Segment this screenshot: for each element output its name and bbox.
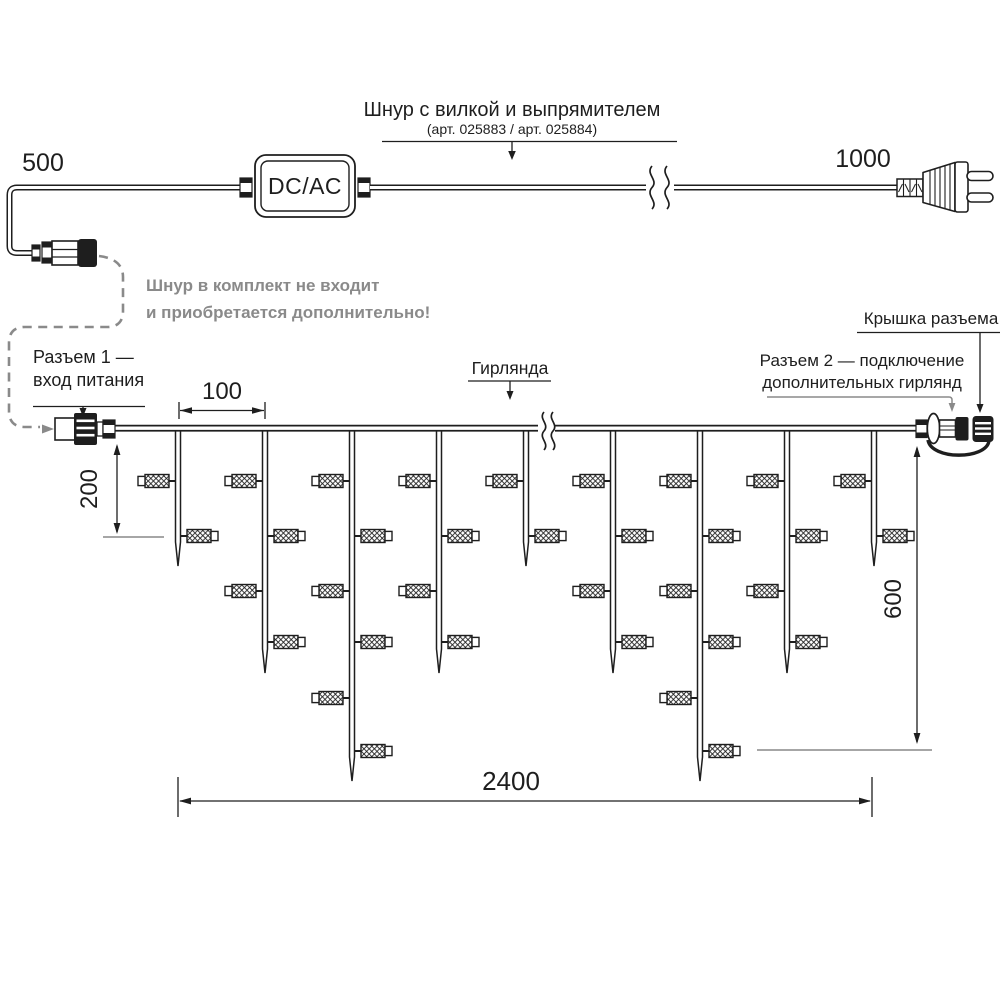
led-bulb bbox=[399, 475, 437, 488]
led-body bbox=[145, 475, 169, 488]
connector1-body bbox=[55, 418, 75, 440]
led-cap bbox=[486, 476, 493, 485]
led-bulb bbox=[616, 530, 654, 543]
wire-break bbox=[538, 412, 555, 450]
led-body bbox=[883, 530, 907, 543]
garland-callout: Гирлянда bbox=[468, 358, 551, 400]
arrow-right-icon bbox=[859, 798, 871, 805]
led-cap bbox=[660, 476, 667, 485]
plug-pin-bottom bbox=[967, 193, 993, 202]
clamp-band bbox=[358, 192, 370, 197]
led-cap bbox=[211, 531, 218, 540]
led-body bbox=[667, 475, 691, 488]
drop-wire bbox=[611, 426, 616, 673]
nut-groove bbox=[77, 427, 95, 430]
led-bulb bbox=[355, 636, 393, 649]
led-cap bbox=[747, 586, 754, 595]
garland-drop bbox=[312, 426, 392, 781]
led-body bbox=[274, 530, 298, 543]
gray-arrow-icon bbox=[42, 425, 54, 434]
led-bulb bbox=[660, 475, 698, 488]
connector1-collar bbox=[97, 422, 103, 436]
clamp-band bbox=[358, 178, 370, 183]
drop-wire bbox=[350, 426, 355, 781]
led-cap bbox=[660, 693, 667, 702]
callout-leader-gray bbox=[767, 397, 952, 403]
led-cap bbox=[747, 476, 754, 485]
cap-groove bbox=[975, 427, 991, 429]
drops-layer bbox=[138, 426, 914, 781]
led-bulb bbox=[573, 585, 611, 598]
dim-spacing-value: 100 bbox=[202, 378, 242, 405]
led-cap bbox=[660, 586, 667, 595]
led-cap bbox=[733, 637, 740, 646]
led-body bbox=[754, 585, 778, 598]
clamp-band bbox=[240, 192, 252, 197]
arrow-right-icon bbox=[252, 407, 264, 414]
cord-title: Шнур с вилкой и выпрямителем bbox=[364, 99, 661, 121]
led-bulb bbox=[399, 585, 437, 598]
garland-drop bbox=[138, 426, 218, 566]
led-bulb bbox=[355, 745, 393, 758]
drop-wire bbox=[176, 426, 181, 566]
ferrule-band bbox=[32, 257, 40, 262]
ferrule-band bbox=[42, 258, 52, 264]
drop-wire bbox=[524, 426, 529, 566]
arrow-down-icon bbox=[114, 523, 121, 534]
led-body bbox=[667, 692, 691, 705]
garland-technical-diagram: 500 1000 DC/AC bbox=[0, 0, 1000, 1000]
led-cap bbox=[225, 476, 232, 485]
plug-pin-top bbox=[967, 172, 993, 181]
led-bulb bbox=[877, 530, 915, 543]
drop-wire bbox=[785, 426, 790, 673]
led-body bbox=[535, 530, 559, 543]
connector2-label-line2: дополнительных гирлянд bbox=[762, 373, 962, 392]
clamp-band bbox=[916, 420, 927, 425]
led-body bbox=[493, 475, 517, 488]
led-body bbox=[448, 636, 472, 649]
led-body bbox=[580, 585, 604, 598]
led-bulb bbox=[834, 475, 872, 488]
led-bulb bbox=[790, 530, 828, 543]
led-cap bbox=[573, 476, 580, 485]
led-bulb bbox=[181, 530, 219, 543]
led-bulb bbox=[747, 475, 785, 488]
drop-wire bbox=[437, 426, 442, 673]
led-bulb bbox=[529, 530, 567, 543]
led-body bbox=[406, 475, 430, 488]
led-body bbox=[796, 530, 820, 543]
led-bulb bbox=[312, 475, 350, 488]
led-body bbox=[709, 745, 733, 758]
led-cap bbox=[312, 476, 319, 485]
led-body bbox=[709, 636, 733, 649]
connector-1 bbox=[55, 413, 115, 445]
led-body bbox=[667, 585, 691, 598]
led-bulb bbox=[138, 475, 176, 488]
nut-groove bbox=[77, 420, 95, 423]
led-body bbox=[622, 636, 646, 649]
led-bulb bbox=[442, 636, 480, 649]
led-cap bbox=[399, 586, 406, 595]
drop-wire bbox=[698, 426, 703, 781]
callout-leader bbox=[468, 381, 551, 391]
led-body bbox=[406, 585, 430, 598]
garland-drop bbox=[399, 426, 479, 673]
led-cap bbox=[820, 637, 827, 646]
led-cap bbox=[820, 531, 827, 540]
led-bulb bbox=[790, 636, 828, 649]
diagram-page: 500 1000 DC/AC bbox=[0, 0, 1000, 1000]
garland-drop bbox=[573, 426, 653, 673]
led-bulb bbox=[312, 585, 350, 598]
led-bulb bbox=[486, 475, 524, 488]
led-cap bbox=[733, 746, 740, 755]
led-bulb bbox=[225, 475, 263, 488]
garland-drop bbox=[225, 426, 305, 673]
led-bulb bbox=[268, 636, 306, 649]
led-body bbox=[319, 475, 343, 488]
cable-break-mark bbox=[665, 166, 669, 209]
led-cap bbox=[312, 693, 319, 702]
led-cap bbox=[834, 476, 841, 485]
led-bulb bbox=[312, 692, 350, 705]
arrow-down-icon bbox=[914, 733, 921, 744]
led-bulb bbox=[268, 530, 306, 543]
dc-ac-adapter: DC/AC bbox=[240, 155, 370, 217]
led-body bbox=[841, 475, 865, 488]
led-body bbox=[319, 585, 343, 598]
adapter-label: DC/AC bbox=[268, 173, 342, 199]
ferrule-band bbox=[42, 242, 52, 248]
led-body bbox=[709, 530, 733, 543]
callout-leader bbox=[382, 142, 677, 152]
led-cap bbox=[385, 746, 392, 755]
connector2-black-end bbox=[956, 417, 969, 441]
led-cap bbox=[298, 531, 305, 540]
led-body bbox=[187, 530, 211, 543]
led-cap bbox=[225, 586, 232, 595]
power-cord-section: 500 1000 DC/AC bbox=[10, 99, 994, 267]
led-body bbox=[361, 530, 385, 543]
garland-label: Гирлянда bbox=[472, 358, 549, 378]
led-body bbox=[361, 745, 385, 758]
led-cap bbox=[573, 586, 580, 595]
dimension-2400: 2400 bbox=[178, 766, 872, 817]
led-bulb bbox=[660, 692, 698, 705]
led-cap bbox=[385, 637, 392, 646]
garland-drop bbox=[747, 426, 827, 673]
connector2-label-line1: Разъем 2 — подключение bbox=[760, 351, 965, 370]
drop-wire bbox=[263, 426, 268, 673]
dim-first-drop-value: 200 bbox=[76, 469, 103, 509]
note-line1: Шнур в комплект не входит bbox=[146, 276, 379, 295]
dimension-200: 200 bbox=[76, 444, 164, 537]
clamp-band bbox=[103, 433, 115, 438]
led-bulb bbox=[703, 530, 741, 543]
plug-face bbox=[955, 162, 968, 212]
led-cap bbox=[385, 531, 392, 540]
cord-subtitle: (арт. 025883 / арт. 025884) bbox=[427, 121, 597, 137]
cord-title-callout: Шнур с вилкой и выпрямителем (арт. 02588… bbox=[364, 99, 677, 160]
dim-total-value: 2400 bbox=[482, 766, 540, 796]
cap-groove bbox=[975, 422, 991, 424]
dimension-100: 100 bbox=[179, 378, 265, 419]
clamp-band bbox=[240, 178, 252, 183]
led-cap bbox=[472, 531, 479, 540]
connector1-label-line2: вход питания bbox=[33, 370, 144, 390]
led-cap bbox=[472, 637, 479, 646]
led-bulb bbox=[703, 636, 741, 649]
cap-label: Крышка разъема bbox=[864, 309, 999, 328]
led-body bbox=[274, 636, 298, 649]
led-bulb bbox=[355, 530, 393, 543]
connector2-callout: Разъем 2 — подключение дополнительных ги… bbox=[760, 351, 965, 412]
cap-groove bbox=[975, 433, 991, 435]
cable-break-mark bbox=[650, 166, 654, 209]
led-cap bbox=[907, 531, 914, 540]
gray-down-arrow-icon bbox=[949, 403, 956, 412]
clamp-band bbox=[103, 420, 115, 425]
dashed-connection-path bbox=[9, 256, 123, 427]
arrow-up-icon bbox=[914, 446, 921, 457]
led-body bbox=[319, 692, 343, 705]
callout-leader bbox=[33, 407, 145, 409]
led-cap bbox=[298, 637, 305, 646]
connector2-body bbox=[940, 420, 956, 437]
cap-strap bbox=[928, 440, 989, 455]
led-body bbox=[622, 530, 646, 543]
cord-length-right: 1000 bbox=[835, 145, 891, 173]
down-arrow-icon bbox=[977, 404, 984, 413]
led-cap bbox=[733, 531, 740, 540]
led-cap bbox=[559, 531, 566, 540]
led-body bbox=[448, 530, 472, 543]
clamp-band bbox=[916, 433, 927, 438]
led-body bbox=[232, 475, 256, 488]
down-arrow-icon bbox=[507, 391, 514, 400]
ferrule-band bbox=[32, 245, 40, 250]
garland-drop bbox=[660, 426, 740, 781]
note-line2: и приобретается дополнительно! bbox=[146, 303, 430, 322]
connector2-flange bbox=[927, 414, 939, 444]
led-bulb bbox=[573, 475, 611, 488]
nut-groove bbox=[77, 434, 95, 437]
led-body bbox=[232, 585, 256, 598]
led-bulb bbox=[660, 585, 698, 598]
led-bulb bbox=[616, 636, 654, 649]
led-body bbox=[580, 475, 604, 488]
led-body bbox=[361, 636, 385, 649]
down-arrow-icon bbox=[508, 151, 516, 160]
led-cap bbox=[312, 586, 319, 595]
led-cap bbox=[138, 476, 145, 485]
power-plug bbox=[897, 162, 993, 212]
connector-2 bbox=[916, 414, 994, 456]
led-cap bbox=[399, 476, 406, 485]
led-cap bbox=[646, 637, 653, 646]
cord-length-left: 500 bbox=[22, 149, 64, 177]
led-bulb bbox=[703, 745, 741, 758]
arrow-up-icon bbox=[114, 444, 121, 455]
drop-wire bbox=[872, 426, 877, 566]
arrow-left-icon bbox=[180, 407, 192, 414]
connector1-label-line1: Разъем 1 — bbox=[33, 347, 134, 367]
led-cap bbox=[646, 531, 653, 540]
connector1-callout: Разъем 1 — вход питания bbox=[33, 347, 145, 417]
connector-black-cap bbox=[78, 239, 97, 267]
led-body bbox=[796, 636, 820, 649]
cord-output-connector bbox=[32, 239, 97, 267]
led-bulb bbox=[225, 585, 263, 598]
connector-body bbox=[52, 241, 78, 265]
dim-max-drop-value: 600 bbox=[880, 579, 907, 619]
led-bulb bbox=[442, 530, 480, 543]
dimension-600: 600 bbox=[757, 446, 932, 750]
arrow-left-icon bbox=[179, 798, 191, 805]
led-bulb bbox=[747, 585, 785, 598]
led-body bbox=[754, 475, 778, 488]
garland-drop bbox=[834, 426, 914, 566]
